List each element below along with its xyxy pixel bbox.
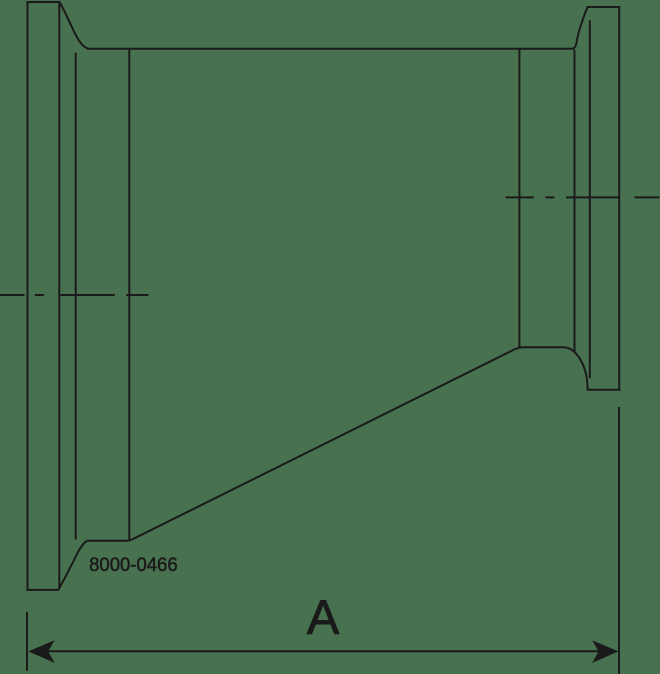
svg-text:8000-0466: 8000-0466 [89, 555, 178, 576]
svg-text:A: A [307, 590, 340, 644]
